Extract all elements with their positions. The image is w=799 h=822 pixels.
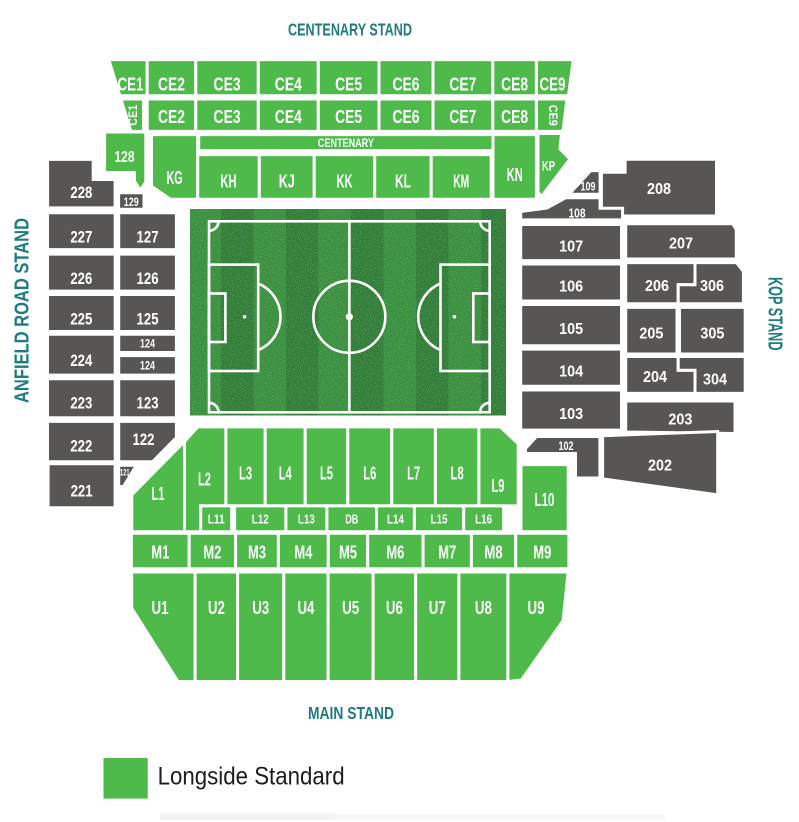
svg-text:224: 224	[70, 351, 92, 370]
svg-text:CE5: CE5	[335, 106, 362, 127]
svg-text:L7: L7	[407, 464, 420, 484]
svg-text:L9: L9	[492, 476, 505, 496]
svg-text:123: 123	[137, 394, 159, 413]
svg-text:Longside Standard: Longside Standard	[158, 763, 345, 791]
svg-text:M9: M9	[533, 543, 551, 563]
svg-text:M3: M3	[248, 543, 266, 563]
svg-text:CENTENARY: CENTENARY	[318, 138, 374, 150]
svg-text:226: 226	[70, 269, 92, 288]
svg-text:104: 104	[559, 364, 583, 381]
svg-text:L16: L16	[475, 513, 492, 527]
svg-text:109: 109	[581, 180, 596, 194]
svg-text:M5: M5	[339, 543, 357, 563]
svg-text:U9: U9	[528, 598, 545, 618]
svg-text:M7: M7	[438, 543, 456, 563]
svg-text:202: 202	[648, 458, 672, 475]
svg-text:M4: M4	[294, 543, 312, 563]
svg-text:L3: L3	[239, 464, 252, 484]
svg-text:CE2: CE2	[158, 106, 185, 127]
svg-text:L14: L14	[387, 513, 404, 527]
svg-text:L15: L15	[431, 513, 448, 527]
svg-text:L5: L5	[320, 464, 333, 484]
svg-text:L1: L1	[152, 484, 165, 504]
svg-text:CE1: CE1	[118, 74, 144, 95]
svg-text:124: 124	[140, 361, 155, 373]
svg-text:M1: M1	[151, 543, 169, 563]
svg-text:U8: U8	[475, 598, 492, 618]
svg-text:KH: KH	[221, 171, 237, 192]
svg-text:208: 208	[647, 181, 671, 198]
svg-text:128: 128	[115, 149, 135, 166]
svg-text:M2: M2	[203, 543, 221, 563]
svg-text:L13: L13	[298, 513, 315, 527]
svg-text:CE8: CE8	[501, 106, 528, 127]
svg-text:U3: U3	[252, 598, 269, 618]
svg-text:KM: KM	[453, 171, 469, 192]
svg-text:228: 228	[70, 183, 92, 202]
svg-text:U5: U5	[342, 598, 359, 618]
svg-text:L4: L4	[279, 464, 292, 484]
svg-text:L2: L2	[198, 470, 211, 490]
svg-text:CE7: CE7	[449, 106, 476, 127]
svg-text:M6: M6	[386, 543, 404, 563]
svg-text:U1: U1	[152, 598, 169, 618]
svg-text:U2: U2	[208, 598, 225, 618]
svg-text:U7: U7	[429, 598, 446, 618]
svg-text:KK: KK	[336, 171, 352, 192]
svg-text:207: 207	[669, 236, 693, 253]
svg-text:U6: U6	[386, 598, 403, 618]
svg-text:MAIN STAND: MAIN STAND	[308, 703, 394, 723]
svg-text:102: 102	[559, 439, 574, 453]
svg-text:223: 223	[70, 394, 92, 413]
svg-text:121: 121	[120, 468, 130, 478]
svg-text:L8: L8	[451, 464, 464, 484]
svg-text:KP: KP	[542, 158, 555, 174]
svg-text:CE6: CE6	[393, 74, 420, 95]
svg-text:CE7: CE7	[449, 74, 476, 95]
svg-text:222: 222	[70, 436, 92, 455]
svg-text:CE5: CE5	[335, 74, 362, 95]
svg-text:124: 124	[140, 339, 155, 351]
svg-text:105: 105	[559, 321, 583, 338]
svg-text:CE4: CE4	[275, 106, 303, 127]
svg-text:108: 108	[569, 206, 586, 220]
svg-text:205: 205	[639, 326, 663, 343]
svg-text:CENTENARY STAND: CENTENARY STAND	[288, 20, 412, 40]
svg-text:227: 227	[70, 228, 92, 247]
svg-text:CE3: CE3	[214, 74, 241, 95]
svg-text:221: 221	[71, 482, 93, 501]
svg-text:L11: L11	[208, 513, 225, 527]
svg-text:CE9: CE9	[540, 74, 566, 95]
svg-text:204: 204	[643, 369, 667, 386]
svg-text:KN: KN	[507, 164, 523, 185]
svg-text:225: 225	[70, 309, 92, 328]
svg-text:L6: L6	[363, 464, 376, 484]
svg-text:KJ: KJ	[279, 171, 295, 192]
svg-text:KOP STAND: KOP STAND	[764, 277, 786, 351]
svg-text:206: 206	[645, 278, 669, 295]
svg-text:CE1: CE1	[128, 104, 140, 126]
svg-text:CE8: CE8	[501, 74, 528, 95]
svg-text:L12: L12	[252, 513, 269, 527]
svg-text:CE3: CE3	[214, 106, 241, 127]
svg-text:KL: KL	[395, 171, 411, 192]
svg-text:129: 129	[124, 197, 139, 209]
svg-text:L10: L10	[535, 490, 555, 510]
svg-text:107: 107	[559, 239, 583, 256]
svg-text:122: 122	[133, 430, 155, 449]
svg-text:106: 106	[559, 279, 583, 296]
svg-text:CE4: CE4	[275, 74, 303, 95]
svg-text:KG: KG	[167, 167, 183, 188]
svg-text:ANFIELD ROAD STAND: ANFIELD ROAD STAND	[12, 218, 34, 403]
svg-text:CE6: CE6	[393, 106, 420, 127]
svg-text:125: 125	[137, 309, 159, 328]
svg-text:CE9: CE9	[546, 105, 558, 126]
svg-text:U4: U4	[297, 598, 314, 618]
svg-text:CE2: CE2	[158, 74, 185, 95]
svg-text:305: 305	[700, 326, 724, 343]
svg-text:103: 103	[559, 406, 583, 423]
svg-text:306: 306	[700, 278, 724, 295]
svg-text:203: 203	[668, 412, 692, 429]
svg-text:127: 127	[137, 228, 159, 247]
svg-text:DB: DB	[345, 513, 358, 527]
svg-text:M8: M8	[485, 543, 503, 563]
svg-text:126: 126	[137, 269, 159, 288]
svg-text:304: 304	[703, 372, 727, 389]
